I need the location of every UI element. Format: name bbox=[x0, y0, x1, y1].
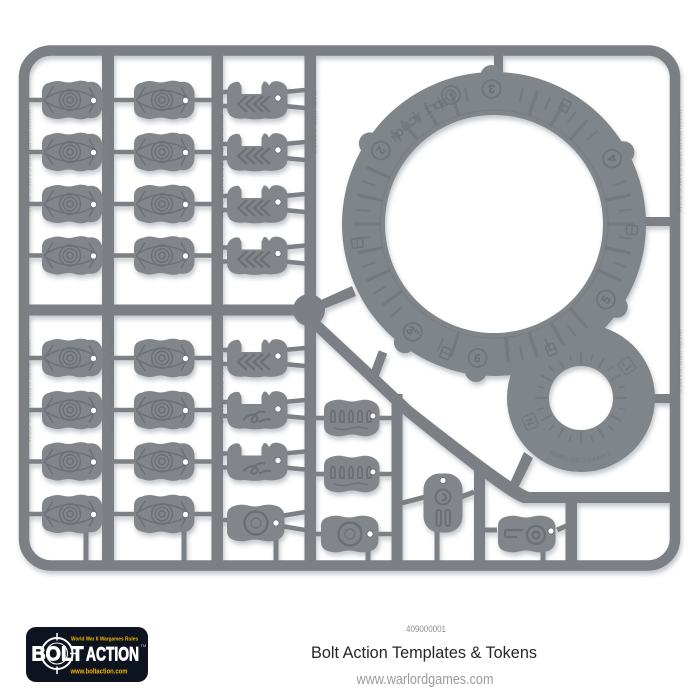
svg-text:WWW.WARLORDGAMES.COM: WWW.WARLORDGAMES.COM bbox=[108, 330, 115, 432]
svg-text:TM: TM bbox=[141, 643, 147, 648]
svg-text:www.boltaction.com: www.boltaction.com bbox=[70, 667, 128, 676]
svg-text:WARLORD GAMES: WARLORD GAMES bbox=[311, 90, 318, 154]
svg-text:www.warlordgames.com: www.warlordgames.com bbox=[356, 672, 494, 688]
svg-text:WWW.WARLORDGAMES.COM: WWW.WARLORDGAMES.COM bbox=[676, 110, 683, 212]
svg-text:WWW.WARLORDGAMES.COM: WWW.WARLORDGAMES.COM bbox=[25, 340, 32, 442]
svg-text:World War II Wargames Rules: World War II Wargames Rules bbox=[71, 637, 138, 643]
svg-text:3: 3 bbox=[488, 82, 495, 96]
svg-text:WARLORD GAMES: WARLORD GAMES bbox=[676, 330, 683, 394]
svg-text:WWW.WARLORDGAMES.COM: WWW.WARLORDGAMES.COM bbox=[25, 110, 32, 212]
svg-text:ACTION: ACTION bbox=[86, 645, 139, 666]
svg-text:WWW.WARLORDGAMES.COM: WWW.WARLORDGAMES.COM bbox=[218, 115, 225, 217]
svg-text:BOLT: BOLT bbox=[32, 644, 84, 666]
svg-text:409000001: 409000001 bbox=[406, 624, 446, 634]
svg-text:WARLORD GAMES: WARLORD GAMES bbox=[108, 115, 115, 179]
svg-text:Bolt Action Templates & Tokens: Bolt Action Templates & Tokens bbox=[311, 643, 537, 662]
